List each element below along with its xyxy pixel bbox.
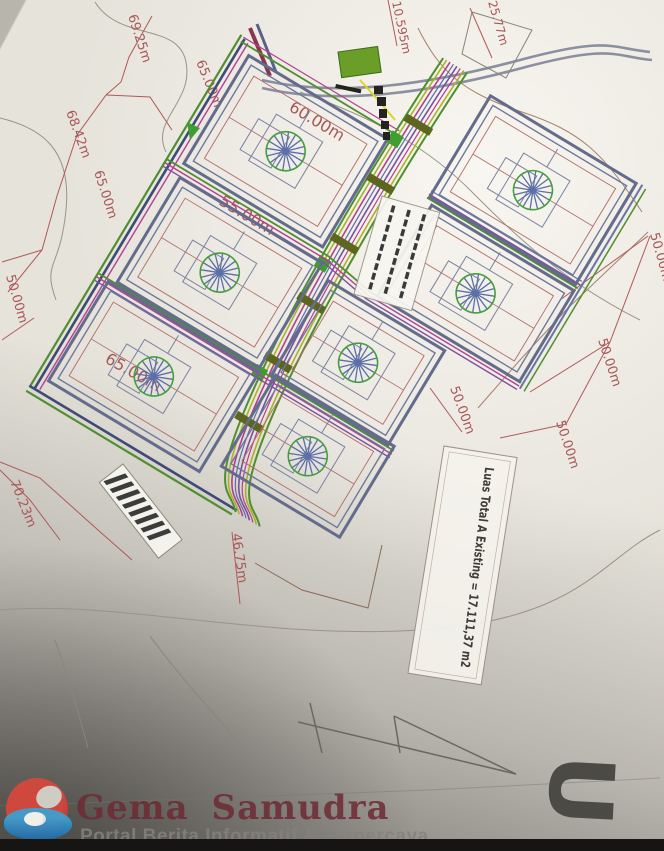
- dim-label: 50.00m: [446, 384, 477, 436]
- green-facility-block: [338, 46, 381, 77]
- photographed-site-plan: 69.25m 65.00m 68.42m 65.00m 50.00m 10.59…: [0, 0, 664, 851]
- dim-label: 50.00m: [646, 231, 664, 283]
- legend-box: [354, 196, 440, 311]
- dim-label: 50.00m: [2, 273, 30, 325]
- site-layout: [26, 0, 650, 611]
- dim-label: 10.595m: [389, 0, 414, 55]
- site-plan-drawing: 69.25m 65.00m 68.42m 65.00m 50.00m 10.59…: [0, 0, 664, 851]
- area-annotation-box: Luas Total A Existing = 17.111,37 m2: [408, 446, 517, 685]
- gema-samudra-logo-icon: [6, 778, 70, 842]
- dim-label: 50.00m: [552, 419, 582, 471]
- watermark: Gema Samudra Portal Berita Informatif & …: [0, 772, 664, 851]
- watermark-title: Gema Samudra: [76, 788, 496, 828]
- dim-label: 65.00m: [102, 349, 165, 395]
- tree-symbol: [237, 90, 333, 189]
- dim-label: 68.42m: [62, 108, 93, 160]
- dim-label: 46.75m: [228, 532, 250, 583]
- photo-bottom-edge: [0, 839, 664, 851]
- dim-label: 70.23m: [6, 478, 39, 530]
- dim-label: 25.77m: [485, 0, 511, 47]
- north-arrow: [298, 703, 516, 774]
- dim-label: 65.00m: [90, 169, 120, 221]
- plot: [49, 281, 260, 471]
- road-culvert: [366, 173, 396, 195]
- tree-symbol: [485, 128, 581, 227]
